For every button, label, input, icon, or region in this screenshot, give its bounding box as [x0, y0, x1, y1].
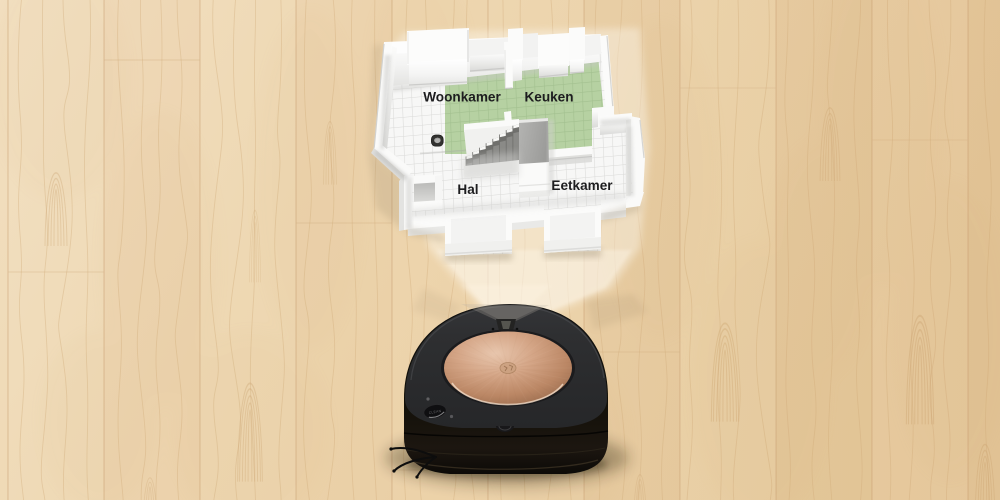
svg-text:Hal: Hal — [457, 182, 478, 197]
svg-text:Woonkamer: Woonkamer — [423, 90, 501, 105]
svg-text:Eetkamer: Eetkamer — [551, 178, 613, 193]
svg-text:Keuken: Keuken — [524, 90, 573, 105]
